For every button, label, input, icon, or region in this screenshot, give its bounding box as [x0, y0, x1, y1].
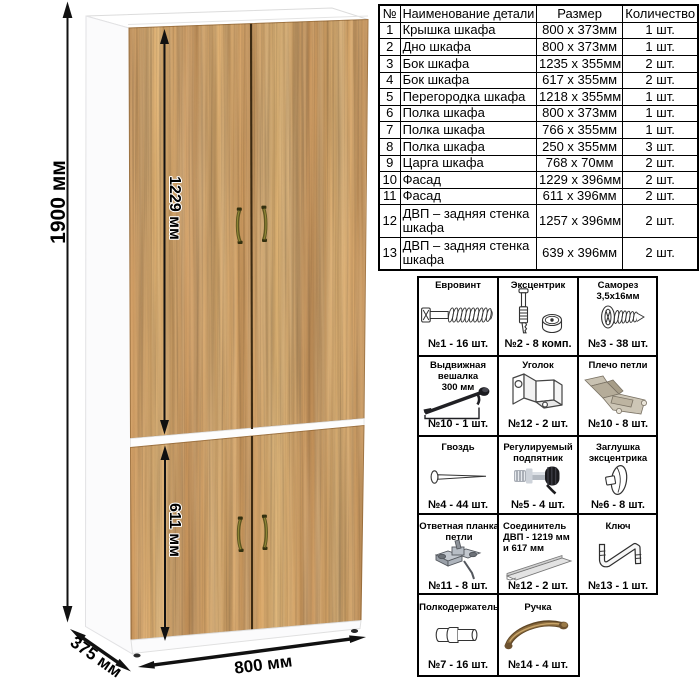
svg-text:800 мм: 800 мм: [233, 651, 293, 677]
svg-text:611 мм: 611 мм: [166, 503, 183, 557]
svg-text:1900 мм: 1900 мм: [47, 160, 70, 244]
svg-text:1229 мм: 1229 мм: [166, 176, 183, 240]
